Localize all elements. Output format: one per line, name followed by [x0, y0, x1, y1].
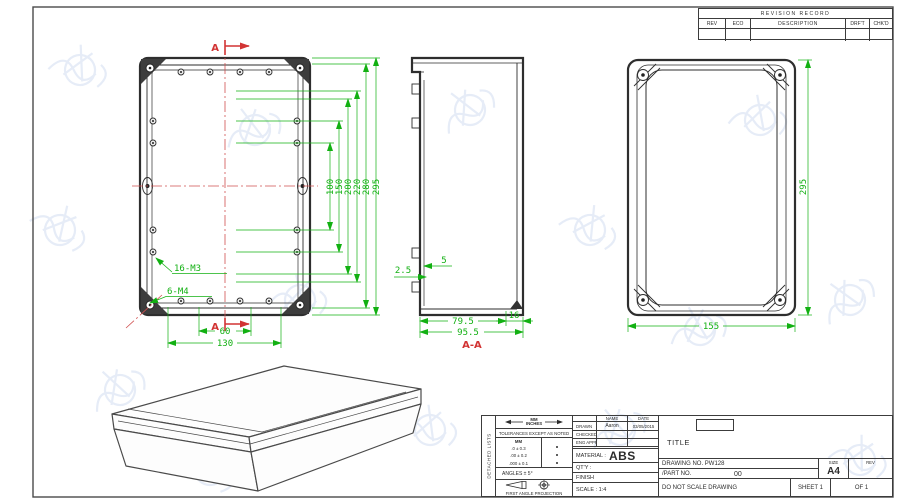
eng-appr-date-empty — [628, 439, 659, 447]
rev-col-header: REV — [699, 19, 726, 29]
thread-note-16-m3: 16-M3 — [174, 264, 201, 274]
revision-record-title: REVISION RECORD — [699, 9, 892, 19]
drawn-date: 03/05/2015 — [628, 422, 659, 431]
units-row: MM INCHES — [496, 416, 572, 429]
rev-label: REV — [849, 459, 892, 465]
size-value: A4 — [819, 465, 848, 478]
description-col-header: DESCRIPTION — [751, 19, 846, 29]
drft-col-header: DRF'T — [846, 19, 870, 29]
back-view — [628, 60, 795, 315]
do-not-scale-note: DO NOT SCALE DRAWING — [659, 479, 791, 496]
dim-16: 16 — [509, 311, 520, 321]
dim-60: 60 — [220, 327, 231, 337]
units-inches-label: INCHES — [526, 422, 542, 426]
isometric-view — [112, 366, 421, 491]
side-strip-label: DETACHED LISTS — [486, 433, 491, 478]
section-dim-labels: 5 2.5 79.5 16 95.5 A-A — [395, 256, 520, 351]
of-label: OF 1 — [831, 479, 892, 496]
side-strip: DETACHED LISTS — [482, 416, 496, 496]
dim-155: 155 — [703, 322, 719, 332]
drawn-name: Aaron — [597, 422, 628, 431]
finish-row: FINISH — [573, 473, 659, 483]
tol-inch-column — [542, 443, 572, 467]
revision-record-table: REVISION RECORD REV ECO DESCRIPTION DRF'… — [698, 8, 893, 40]
tolerance-note: TOLERANCES EXCEPT AS NOTED — [496, 429, 572, 438]
dim-arrow-left-icon — [504, 418, 524, 426]
drawing-no: DRAWING NO. PW128 — [659, 459, 818, 469]
material-label: MATERIAL : — [576, 453, 606, 459]
dim-2-5: 2.5 — [395, 266, 411, 276]
checked-name-empty — [597, 431, 628, 439]
back-dimensions — [628, 60, 812, 332]
tolerance-column: MM INCHES TOLERANCES EXCEPT AS NOTED MM … — [496, 416, 573, 496]
material-row: MATERIAL : ABS — [573, 449, 659, 463]
bottom-row: DO NOT SCALE DRAWING SHEET 1 OF 1 — [659, 479, 892, 496]
dim-295: 295 — [372, 179, 382, 195]
title-column: TITLE DRAWING NO. PW128 /PART NO. 00 SIZ… — [659, 416, 892, 496]
size-cell: SIZE A4 — [819, 459, 849, 479]
rev-cell-empty — [699, 29, 726, 41]
projection-note: FIRST ANGLE PROJECTION — [496, 490, 572, 496]
title-label: TITLE — [667, 438, 727, 450]
dim-95-5: 95.5 — [457, 328, 479, 338]
scale-row: SCALE : 1:4 — [573, 483, 659, 496]
dim-295-back: 295 — [799, 179, 809, 195]
section-mark-a-top: A — [211, 43, 219, 54]
projection-row: FIRST ANGLE PROJECTION — [496, 480, 572, 496]
tolerance-table: MM .0 ± 0.3 .00 ± 0.2 .000 ± 0.1 — [496, 438, 572, 468]
checked-label: CHECKED — [573, 431, 597, 439]
first-angle-projection-icon — [496, 480, 572, 490]
description-cell-empty — [751, 29, 846, 41]
drawing-sheet: A A 100 150 200 220 — [0, 0, 900, 500]
qty-row: QT'Y : — [573, 463, 659, 473]
approvals-column: NAME DATE DRAWN Aaron 03/05/2015 CHECKED… — [573, 416, 659, 496]
section-label-a-a: A-A — [462, 340, 482, 351]
eng-appr-name-empty — [597, 439, 628, 447]
drawing-no-area: DRAWING NO. PW128 /PART NO. 00 SIZE A4 R… — [659, 459, 892, 479]
tol-row-3: .000 ± 0.1 — [496, 459, 542, 467]
dim-280: 280 — [362, 179, 372, 195]
drft-cell-empty — [846, 29, 870, 41]
eco-col-header: ECO — [726, 19, 751, 29]
title-area: TITLE — [659, 416, 892, 459]
dim-79-5: 79.5 — [452, 317, 474, 327]
sheet-label: SHEET 1 — [791, 479, 831, 496]
angles-note: ANGLES ± 5° — [496, 468, 572, 480]
chkd-col-header: CHK'D — [870, 19, 892, 29]
drawing-no-cells: DRAWING NO. PW128 /PART NO. 00 — [659, 459, 819, 479]
thread-note-6-m4: 6-M4 — [167, 287, 189, 297]
rev-cell: REV — [849, 459, 892, 479]
dim-arrow-right-icon — [544, 418, 564, 426]
tol-row-2: .00 ± 0.2 — [496, 452, 542, 459]
plan-dimensions — [150, 58, 380, 348]
section-view — [412, 58, 523, 315]
eng-appr-label: ENG APPR — [573, 439, 597, 447]
plan-centerlines — [126, 44, 318, 331]
material-value: ABS — [609, 449, 636, 463]
dim-130: 130 — [217, 339, 233, 349]
logo-box — [696, 419, 734, 431]
dim-5: 5 — [441, 256, 446, 266]
drawn-label: DRAWN — [573, 422, 597, 431]
tol-mm-header: MM — [496, 438, 542, 445]
title-block: DETACHED LISTS MM INCHES TOLERANCES EXCE… — [481, 415, 893, 497]
section-cut-marks: A A — [211, 40, 249, 333]
eco-cell-empty — [726, 29, 751, 41]
tol-row-1: .0 ± 0.3 — [496, 445, 542, 452]
checked-date-empty — [628, 431, 659, 439]
part-no-value: 00 — [731, 469, 771, 479]
